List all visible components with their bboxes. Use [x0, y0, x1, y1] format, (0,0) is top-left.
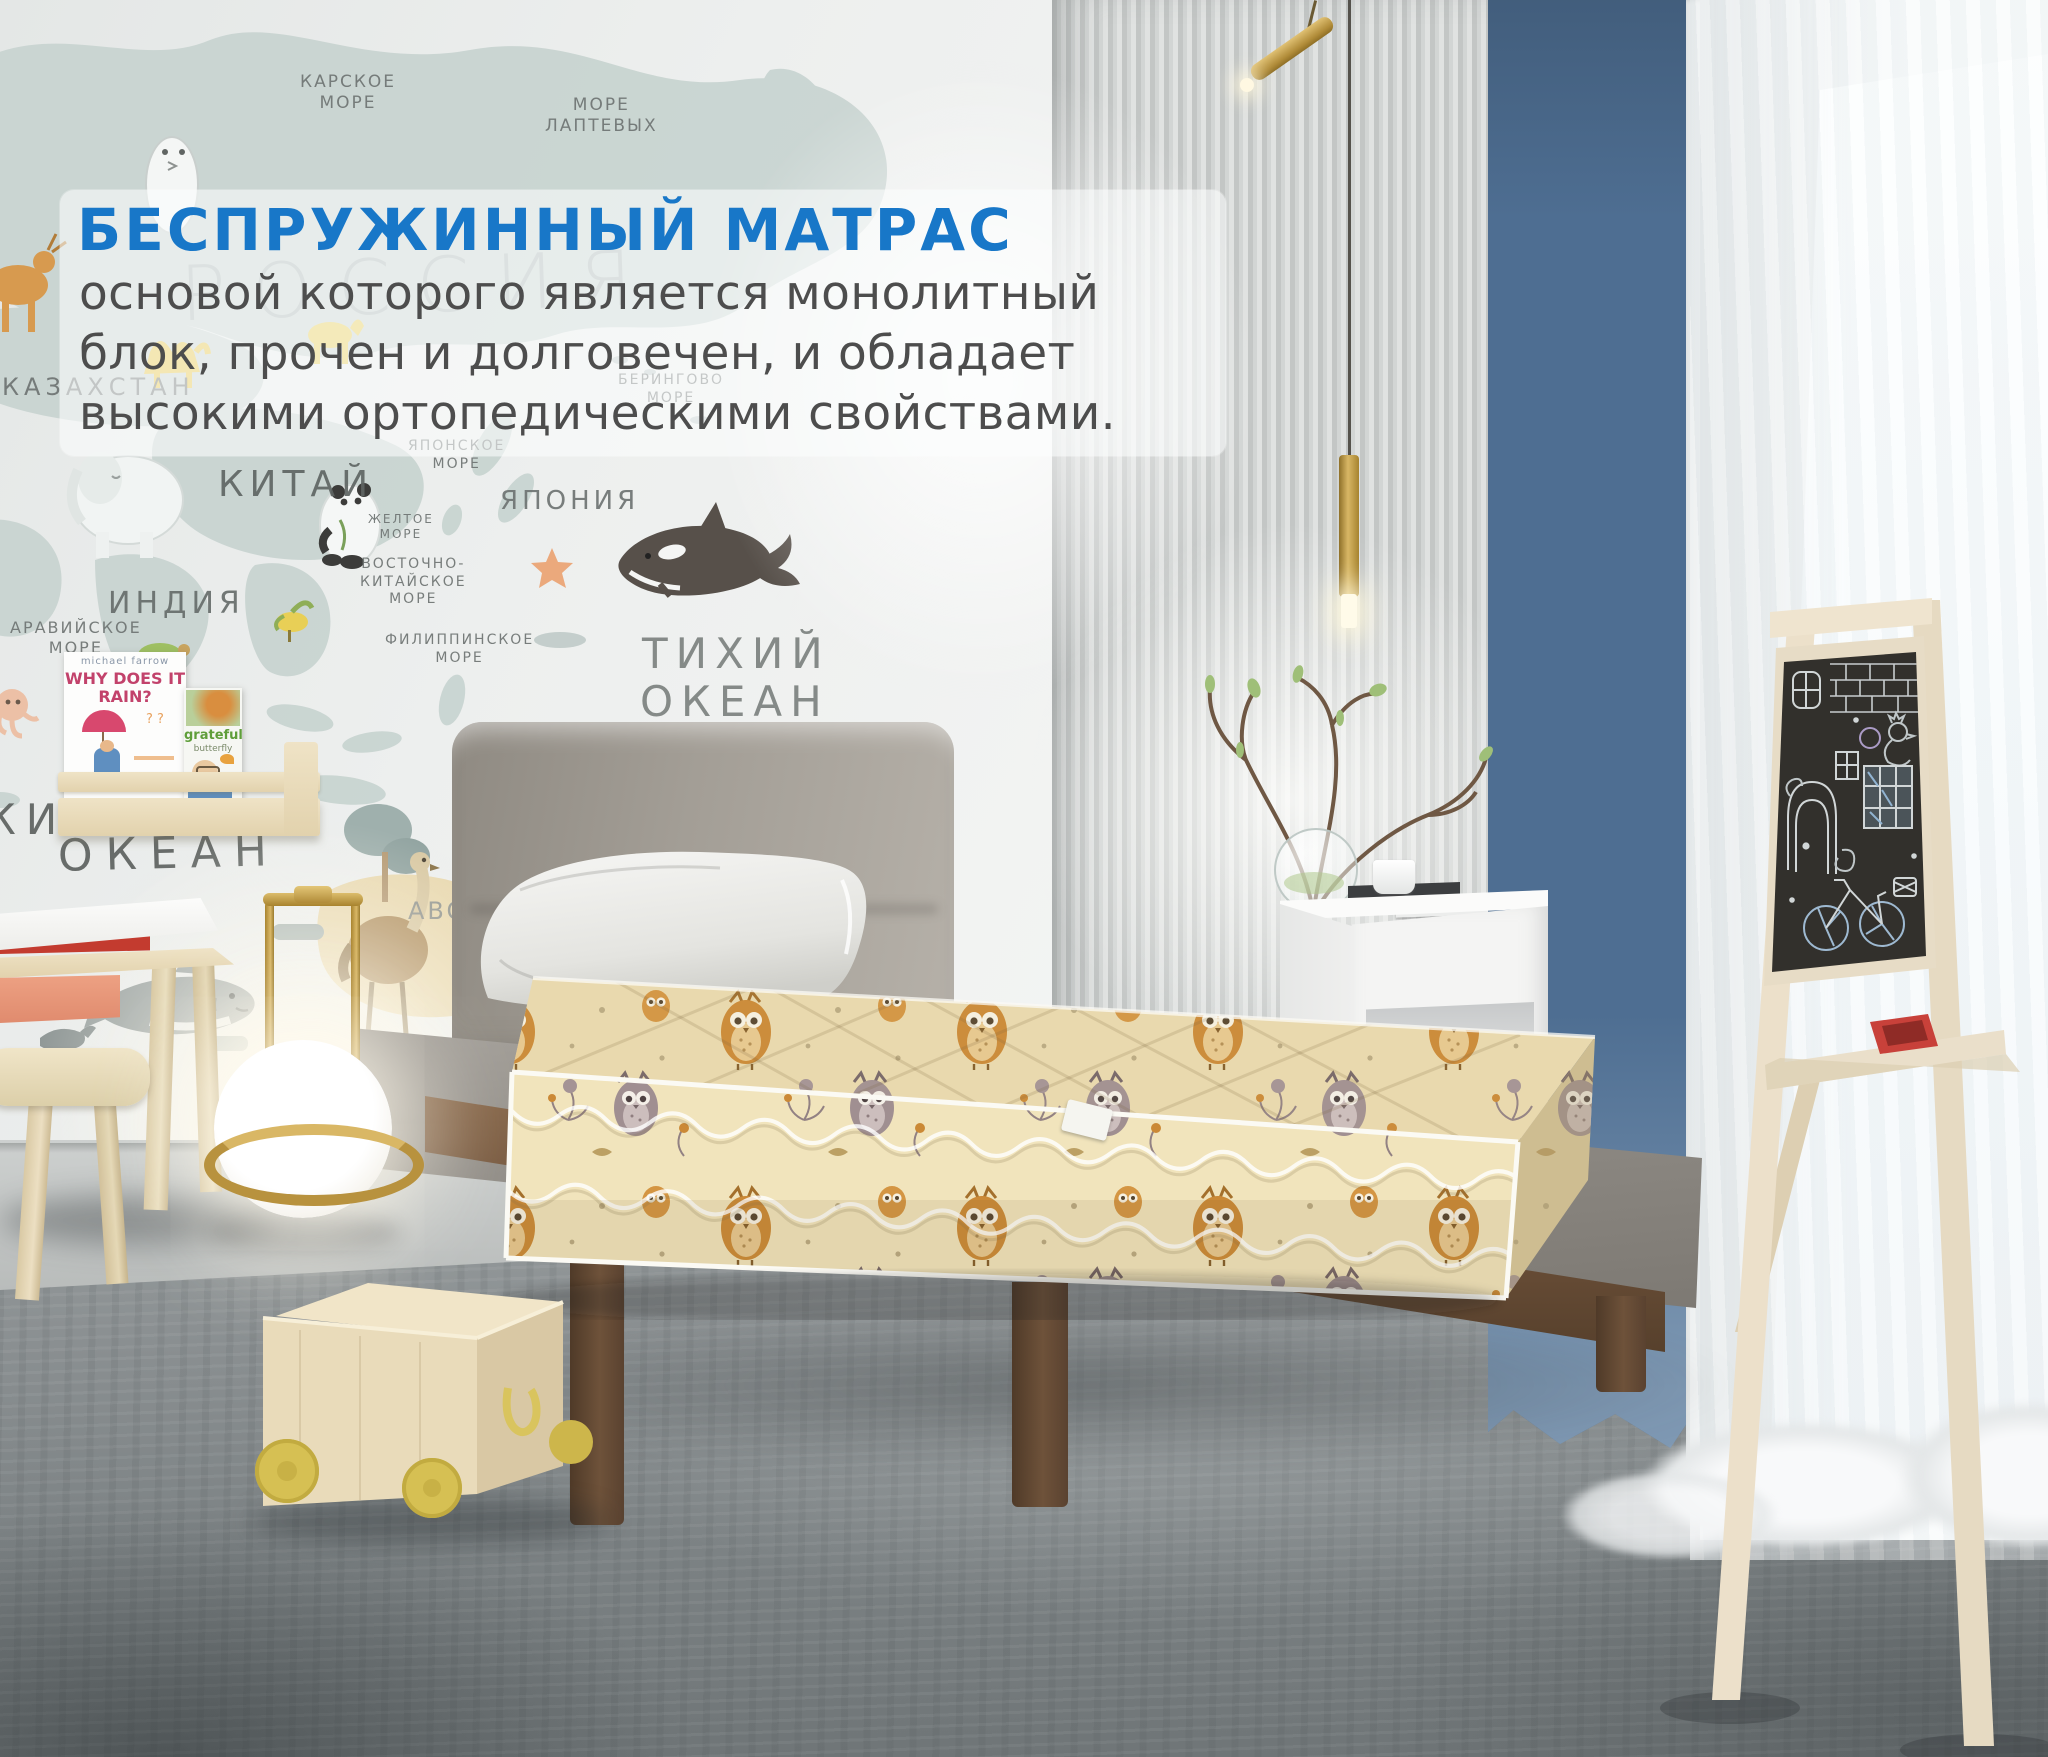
stool-seat: [0, 1048, 150, 1106]
book2-tree-art: [186, 690, 240, 726]
map-starfish: [531, 548, 573, 588]
map-octopus: [0, 689, 38, 736]
book1-raindrop-marks: ? ?: [146, 712, 164, 727]
map-elephant: [72, 452, 183, 558]
pendant-light-bulb: [1341, 594, 1357, 628]
bookshelf-board: [58, 798, 320, 836]
desk-drawer-coral: [0, 975, 120, 1023]
pendant-cable: [1348, 0, 1351, 458]
white-cup: [1373, 860, 1415, 894]
book1-girl-face: [100, 740, 114, 752]
map-label-philippine-sea: ФИЛИППИНСКОЕ МОРЕ: [385, 632, 534, 667]
book2-subtitle: butterfly: [184, 744, 242, 754]
lamp-handle-sleeve: [294, 886, 332, 903]
bookshelf-front-rail: [58, 772, 320, 792]
overlay-line-3: высокими ортопедическими свойствами.: [79, 386, 1116, 441]
overlay-line-2: блок, прочен и долговечен, и обладает: [79, 326, 1075, 381]
book2-title: grateful: [184, 728, 242, 743]
map-label-japan: ЯПОНИЯ: [500, 485, 639, 518]
children-bedroom-product-photo: РОССИЯ КАРСКОЕ МОРЕ МОРЕ ЛАПТЕВЫХ БЕРИНГ…: [0, 0, 2048, 1757]
book1-author: michael farrow: [64, 656, 186, 667]
angled-spotlight-bulb: [1240, 78, 1254, 92]
map-label-china: КИТАЙ: [218, 462, 374, 507]
book1-title: WHY DOES IT RAIN?: [64, 670, 186, 705]
marketing-text-overlay: БЕСПРУЖИННЫЙ МАТРАС основой которого явл…: [60, 190, 1226, 456]
map-label-east-china-sea: ВОСТОЧНО- КИТАЙСКОЕ МОРЕ: [360, 556, 467, 609]
map-label-india: ИНДИЯ: [108, 585, 245, 623]
cart-box: [240, 1250, 620, 1550]
chalkboard-easel: [1630, 560, 2048, 1757]
lamp-shadow: [210, 1212, 400, 1252]
vase-water: [1284, 872, 1344, 894]
map-label-kara-sea: КАРСКОЕ МОРЕ: [300, 72, 396, 115]
overlay-title: БЕСПРУЖИННЫЙ МАТРАС: [77, 196, 1014, 264]
map-label-yellow-sea: ЖЕЛТОЕ МОРЕ: [368, 512, 434, 542]
gold-pendant-light: [1339, 455, 1359, 597]
book1-umbrella-icon: [82, 710, 126, 732]
bookshelf-end-cap: [284, 742, 318, 836]
book2-butterfly-icon: [220, 754, 234, 764]
map-label-laptev-sea: МОРЕ ЛАПТЕВЫХ: [545, 95, 658, 138]
overlay-line-1: основой которого является монолитный: [79, 266, 1099, 321]
lamp-brass-ring: [204, 1124, 424, 1206]
book1-small-text-line: [134, 756, 174, 760]
